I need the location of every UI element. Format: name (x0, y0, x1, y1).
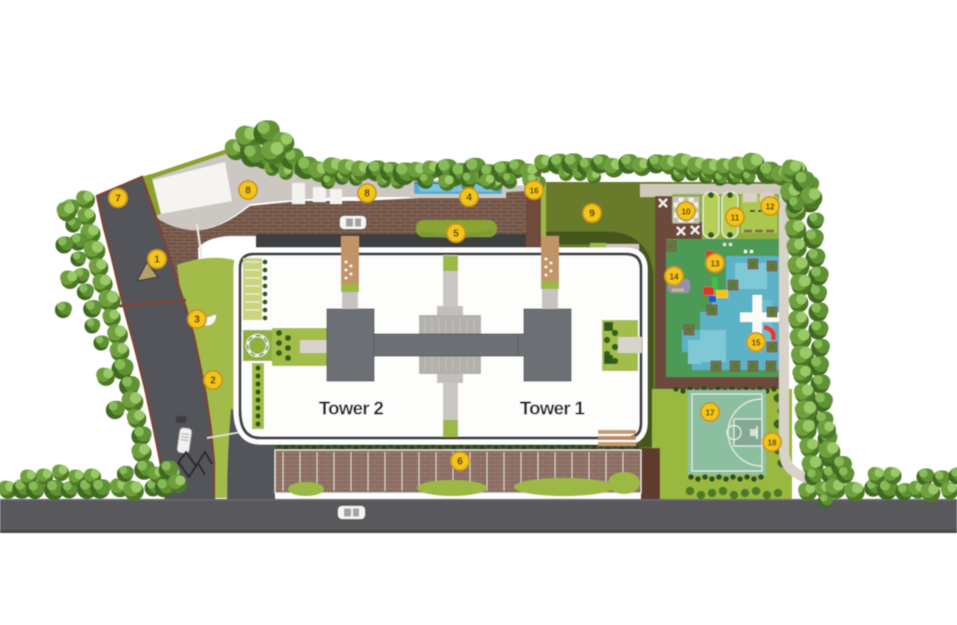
svg-text:14: 14 (669, 272, 679, 281)
svg-text:18: 18 (767, 438, 777, 447)
svg-text:5: 5 (453, 228, 459, 239)
svg-text:2: 2 (210, 375, 216, 386)
svg-text:13: 13 (710, 259, 720, 268)
svg-text:7: 7 (115, 193, 121, 204)
svg-text:3: 3 (194, 314, 200, 325)
svg-text:11: 11 (731, 213, 740, 222)
svg-text:12: 12 (765, 202, 775, 211)
svg-text:9: 9 (589, 208, 595, 219)
svg-text:17: 17 (705, 408, 715, 417)
svg-text:10: 10 (681, 207, 691, 216)
svg-text:Tower 1: Tower 1 (520, 398, 585, 419)
svg-text:15: 15 (751, 338, 761, 347)
svg-text:16: 16 (529, 186, 539, 195)
svg-text:8: 8 (245, 185, 251, 196)
svg-text:8: 8 (364, 188, 370, 199)
svg-text:4: 4 (466, 192, 472, 203)
svg-text:1: 1 (154, 254, 160, 265)
svg-text:6: 6 (457, 456, 463, 467)
svg-text:Tower 2: Tower 2 (319, 398, 384, 419)
